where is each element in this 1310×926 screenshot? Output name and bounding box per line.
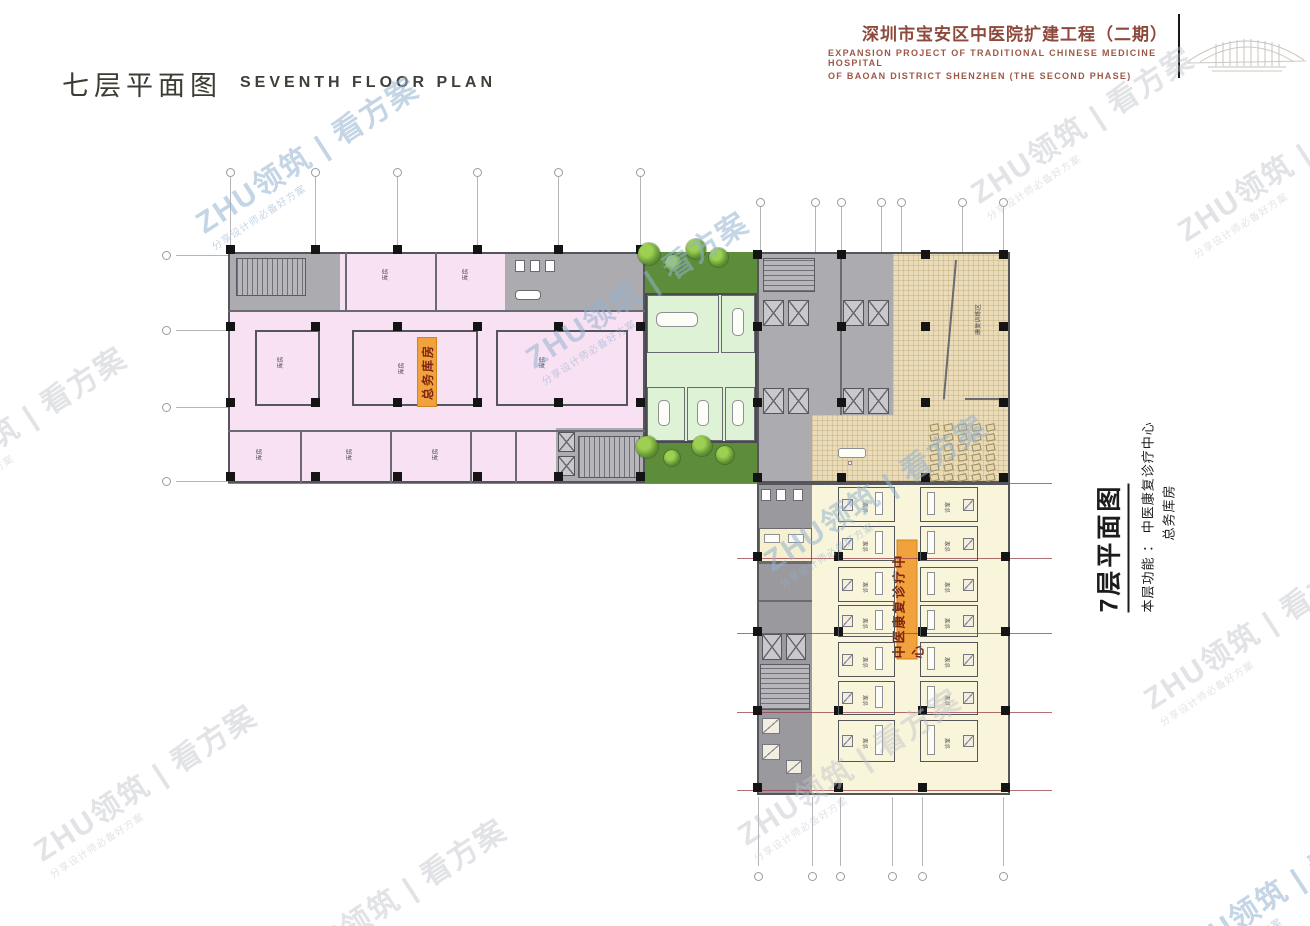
structural-column — [753, 706, 762, 715]
structural-column — [226, 245, 235, 254]
grid-bubble — [877, 198, 886, 207]
wc-fixture — [761, 489, 771, 501]
tree — [638, 243, 660, 265]
treatment-bed — [842, 615, 853, 627]
wall — [759, 600, 812, 602]
wall — [228, 310, 645, 312]
consult-desk — [875, 492, 883, 515]
stair-hatch-bottomright — [578, 436, 640, 478]
office-desk — [764, 534, 780, 543]
function-label: 本层功能 — [1141, 556, 1156, 612]
elevator-shaft — [843, 388, 864, 414]
consult-desk — [927, 572, 935, 595]
storage-room-label: 库房 — [345, 449, 354, 461]
consult-desk — [927, 686, 935, 708]
grid-bubble — [554, 168, 563, 177]
grid-line — [477, 177, 478, 250]
structural-column — [554, 245, 563, 254]
grid-line — [397, 177, 398, 250]
structural-column — [999, 473, 1008, 482]
treatment-bed — [963, 615, 974, 627]
structural-column — [473, 472, 482, 481]
structural-column — [753, 250, 762, 259]
structural-column — [393, 322, 402, 331]
grid-line — [176, 481, 228, 482]
wall — [345, 252, 347, 310]
grid-bubble — [162, 251, 171, 260]
grid-bubble — [162, 403, 171, 412]
storage-room-label: 库房 — [397, 363, 406, 375]
treatment-bed — [842, 654, 853, 666]
structural-column — [918, 783, 927, 792]
wc-fixture — [545, 260, 555, 272]
office-desk — [697, 400, 709, 426]
consult-desk — [875, 647, 883, 670]
wall — [228, 430, 645, 432]
wc-fixture — [776, 489, 786, 501]
grid-line — [1003, 797, 1004, 866]
consult-room-label: 诊室 — [943, 541, 951, 552]
structural-column — [837, 398, 846, 407]
grid-bubble — [756, 198, 765, 207]
consult-room-label: 诊室 — [943, 738, 951, 749]
wc-fixture — [793, 489, 803, 501]
office-desk — [732, 308, 744, 336]
service-fixture — [762, 744, 780, 760]
treatment-bed — [963, 499, 974, 511]
consult-desk — [875, 686, 883, 708]
consult-desk — [927, 531, 935, 554]
grid-line — [922, 797, 923, 866]
general-storage-label: 总务库房 — [417, 337, 437, 407]
storage-room-label: 库房 — [276, 357, 285, 369]
grid-line — [758, 797, 759, 866]
structural-column — [837, 250, 846, 259]
reception-desk — [838, 448, 866, 458]
wall — [390, 432, 392, 483]
treatment-bed — [842, 579, 853, 591]
structural-column — [636, 398, 645, 407]
elevator-shaft — [843, 300, 864, 326]
structural-column — [753, 473, 762, 482]
grid-bubble — [958, 198, 967, 207]
structural-column — [636, 472, 645, 481]
axis-line — [228, 483, 1052, 484]
storage-room-label: 库房 — [538, 357, 547, 369]
structural-column — [837, 322, 846, 331]
grid-line — [315, 177, 316, 250]
tree — [686, 239, 706, 259]
treatment-bed — [842, 735, 853, 747]
treatment-bed — [963, 735, 974, 747]
wc-fixture — [530, 260, 540, 272]
core-stair — [763, 258, 815, 292]
structural-column — [311, 322, 320, 331]
tree — [716, 446, 734, 464]
grid-line — [230, 177, 231, 250]
grid-line — [1003, 207, 1004, 252]
wall — [759, 562, 812, 564]
tree — [664, 450, 680, 466]
side-note: 7层平面图 本层功能 ： 中医康复诊疗中心 总务库房 — [1090, 398, 1168, 613]
consult-room-label: 诊室 — [860, 582, 868, 593]
side-note-title: 7层平面图 — [1090, 484, 1130, 613]
consult-room-label: 诊室 — [860, 738, 868, 749]
stair-hatch-topleft — [236, 258, 306, 296]
structural-column — [1001, 783, 1010, 792]
wall — [435, 252, 437, 310]
treatment-bed — [963, 654, 974, 666]
structural-column — [1001, 627, 1010, 636]
tree — [636, 436, 658, 458]
grid-line — [815, 207, 816, 252]
grid-bubble — [888, 872, 897, 881]
wc-counter — [515, 290, 541, 300]
storage-room-label: 库房 — [255, 449, 264, 461]
grid-bubble — [836, 872, 845, 881]
storage-room-box — [255, 330, 320, 406]
grid-line — [962, 207, 963, 252]
structural-column — [999, 250, 1008, 259]
structural-column — [226, 398, 235, 407]
office-desk — [732, 400, 744, 426]
wall — [470, 432, 472, 483]
consult-desk — [875, 531, 883, 554]
side-note-function-line: 本层功能 ： 中医康复诊疗中心 — [1138, 398, 1157, 613]
grid-line — [812, 797, 813, 866]
structural-column — [226, 322, 235, 331]
grid-line — [558, 177, 559, 250]
structural-column — [921, 250, 930, 259]
elevator-shaft — [868, 388, 889, 414]
treatment-bed — [842, 499, 853, 511]
grid-line — [176, 407, 228, 408]
structural-column — [921, 398, 930, 407]
elevator-shaft — [788, 300, 809, 326]
structural-column — [226, 472, 235, 481]
elevator-shaft — [763, 300, 784, 326]
grid-bubble — [808, 872, 817, 881]
elevator-shaft — [763, 388, 784, 414]
consult-room-label: 诊室 — [943, 695, 951, 706]
storage-room-box — [496, 330, 628, 406]
grid-bubble — [393, 168, 402, 177]
floor-plan-sheet: 七层平面图 SEVENTH FLOOR PLAN 深圳市宝安区中医院扩建工程（二… — [0, 0, 1310, 926]
structural-column — [473, 322, 482, 331]
consult-room-label: 诊室 — [860, 502, 868, 513]
grid-line — [176, 330, 228, 331]
structural-column — [753, 552, 762, 561]
consult-desk — [927, 725, 935, 755]
treatment-bed — [963, 538, 974, 550]
tree — [665, 255, 682, 272]
wall — [515, 432, 517, 483]
structural-column — [473, 245, 482, 254]
structural-column — [999, 322, 1008, 331]
structural-column — [311, 245, 320, 254]
consult-room-label: 诊室 — [860, 695, 868, 706]
structural-column — [393, 398, 402, 407]
structural-column — [473, 398, 482, 407]
structural-column — [1001, 706, 1010, 715]
conference-table — [656, 312, 698, 327]
service-fixture — [786, 760, 802, 774]
grid-bubble — [754, 872, 763, 881]
elevator-shaft — [786, 634, 806, 660]
grid-bubble — [999, 198, 1008, 207]
consult-room-label: 诊室 — [943, 618, 951, 629]
storage-room-label: 库房 — [431, 449, 440, 461]
training-area-label: 康复训练区 — [972, 304, 981, 335]
structural-column — [753, 627, 762, 636]
grid-bubble — [918, 872, 927, 881]
storage-room-label: 库房 — [381, 269, 390, 281]
grid-line — [760, 207, 761, 252]
grid-bubble — [636, 168, 645, 177]
grid-line — [640, 177, 641, 250]
wc-fixture — [515, 260, 525, 272]
structural-column — [393, 245, 402, 254]
consult-room-label: 诊室 — [943, 582, 951, 593]
grid-bubble — [473, 168, 482, 177]
wall — [300, 432, 302, 483]
structural-column — [999, 398, 1008, 407]
grid-line — [892, 797, 893, 866]
consult-desk — [927, 647, 935, 670]
consult-desk — [927, 610, 935, 630]
structural-column — [1001, 552, 1010, 561]
structural-column — [753, 322, 762, 331]
function-1: 中医康复诊疗中心 — [1141, 421, 1156, 533]
consult-room-label: 诊室 — [943, 502, 951, 513]
grid-bubble — [162, 326, 171, 335]
consult-desk — [927, 492, 935, 515]
treatment-bed — [963, 692, 974, 704]
side-note-function-2: 总务库房 — [1159, 398, 1178, 541]
grid-line — [881, 207, 882, 252]
consult-room-label: 诊室 — [943, 657, 951, 668]
elevator-shaft — [788, 388, 809, 414]
grid-line — [176, 255, 228, 256]
tree — [709, 248, 728, 267]
consult-room-label: 诊室 — [860, 541, 868, 552]
structural-column — [311, 398, 320, 407]
toilet-block-top — [505, 254, 643, 311]
grid-line — [901, 207, 902, 252]
elevator-shaft — [868, 300, 889, 326]
structural-column — [554, 322, 563, 331]
structural-column — [393, 472, 402, 481]
function-colon: ： — [1141, 538, 1156, 552]
consult-room-label: 诊室 — [860, 657, 868, 668]
structural-column — [753, 398, 762, 407]
core-stair-lower — [760, 664, 810, 710]
structural-column — [636, 322, 645, 331]
elevator-shaft — [762, 634, 782, 660]
grid-bubble — [811, 198, 820, 207]
structural-column — [554, 472, 563, 481]
consult-desk — [875, 725, 883, 755]
tree — [692, 436, 712, 456]
storage-room-box — [352, 330, 478, 406]
structural-column — [921, 322, 930, 331]
consult-desk — [875, 610, 883, 630]
structural-column — [837, 473, 846, 482]
treatment-bed — [842, 538, 853, 550]
structural-column — [834, 783, 843, 792]
consult-room-label: 诊室 — [860, 618, 868, 629]
chair-dot — [848, 461, 852, 465]
grid-bubble — [226, 168, 235, 177]
grid-bubble — [162, 477, 171, 486]
grid-bubble — [837, 198, 846, 207]
office-desk — [658, 400, 670, 426]
grid-line — [841, 207, 842, 252]
structural-column — [311, 472, 320, 481]
elevator-shaft — [558, 432, 575, 452]
storage-room-label: 库房 — [461, 269, 470, 281]
consult-desk — [875, 572, 883, 595]
treatment-bed — [842, 692, 853, 704]
grid-bubble — [999, 872, 1008, 881]
service-fixture — [762, 718, 780, 734]
office-desk — [788, 534, 804, 543]
structural-column — [753, 783, 762, 792]
grid-line — [840, 797, 841, 866]
grid-bubble — [311, 168, 320, 177]
treatment-bed — [963, 579, 974, 591]
grid-bubble — [897, 198, 906, 207]
structural-column — [554, 398, 563, 407]
